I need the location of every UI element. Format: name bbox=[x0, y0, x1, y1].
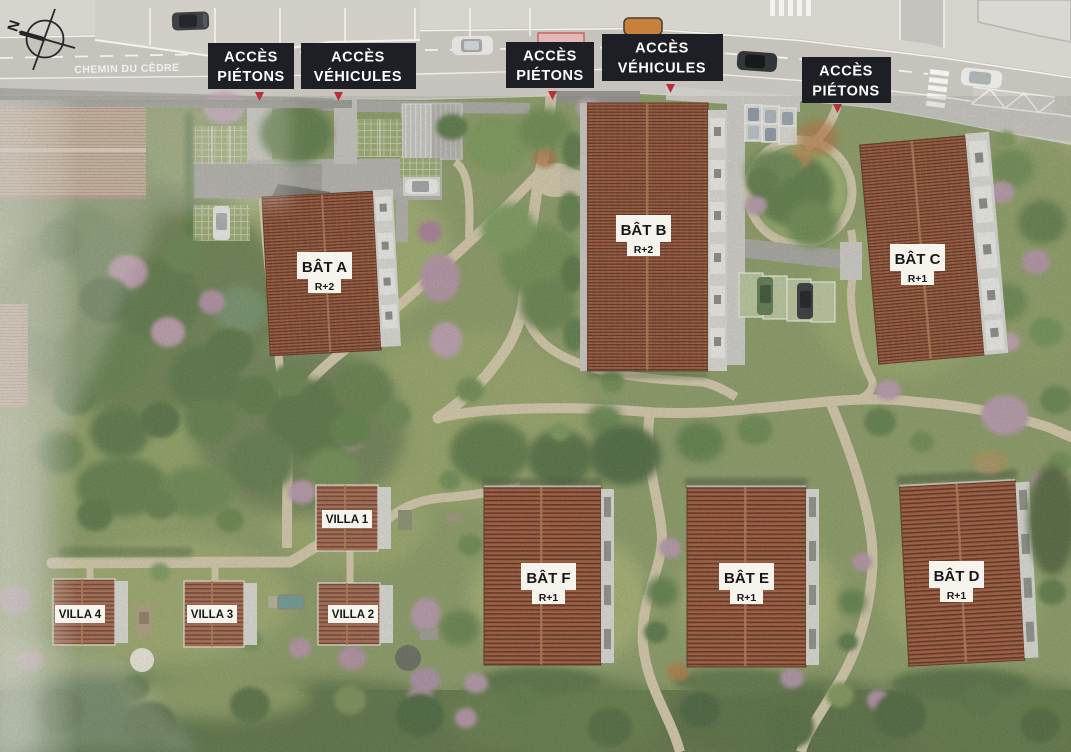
svg-text:ACCÈS: ACCÈS bbox=[224, 49, 278, 66]
svg-text:VILLA 3: VILLA 3 bbox=[191, 609, 233, 621]
svg-text:BÂT E: BÂT E bbox=[724, 569, 769, 587]
svg-text:R+2: R+2 bbox=[634, 244, 654, 256]
svg-text:VÉHICULES: VÉHICULES bbox=[314, 68, 402, 85]
svg-text:CHEMIN DU CÈDRE: CHEMIN DU CÈDRE bbox=[74, 61, 179, 76]
svg-text:PIÉTONS: PIÉTONS bbox=[516, 67, 584, 84]
svg-text:VILLA 4: VILLA 4 bbox=[59, 609, 102, 621]
svg-text:VILLA 2: VILLA 2 bbox=[332, 609, 374, 621]
svg-text:BÂT F: BÂT F bbox=[526, 569, 570, 587]
svg-text:R+1: R+1 bbox=[908, 273, 928, 285]
svg-text:ACCÈS: ACCÈS bbox=[523, 48, 577, 65]
svg-text:R+1: R+1 bbox=[737, 592, 757, 604]
svg-text:PIÉTONS: PIÉTONS bbox=[217, 68, 285, 85]
svg-text:ACCÈS: ACCÈS bbox=[635, 40, 689, 57]
svg-text:ACCÈS: ACCÈS bbox=[331, 49, 385, 66]
svg-text:ACCÈS: ACCÈS bbox=[819, 63, 873, 80]
svg-text:BÂT B: BÂT B bbox=[621, 221, 667, 239]
svg-text:R+2: R+2 bbox=[315, 281, 335, 293]
svg-text:R+1: R+1 bbox=[947, 590, 967, 602]
svg-text:BÂT D: BÂT D bbox=[934, 567, 980, 585]
svg-text:VÉHICULES: VÉHICULES bbox=[618, 60, 706, 77]
svg-text:PIÉTONS: PIÉTONS bbox=[812, 83, 880, 100]
svg-text:BÂT C: BÂT C bbox=[895, 250, 941, 268]
svg-text:R+1: R+1 bbox=[539, 592, 559, 604]
svg-text:BÂT A: BÂT A bbox=[302, 258, 347, 276]
svg-text:VILLA 1: VILLA 1 bbox=[326, 514, 369, 526]
